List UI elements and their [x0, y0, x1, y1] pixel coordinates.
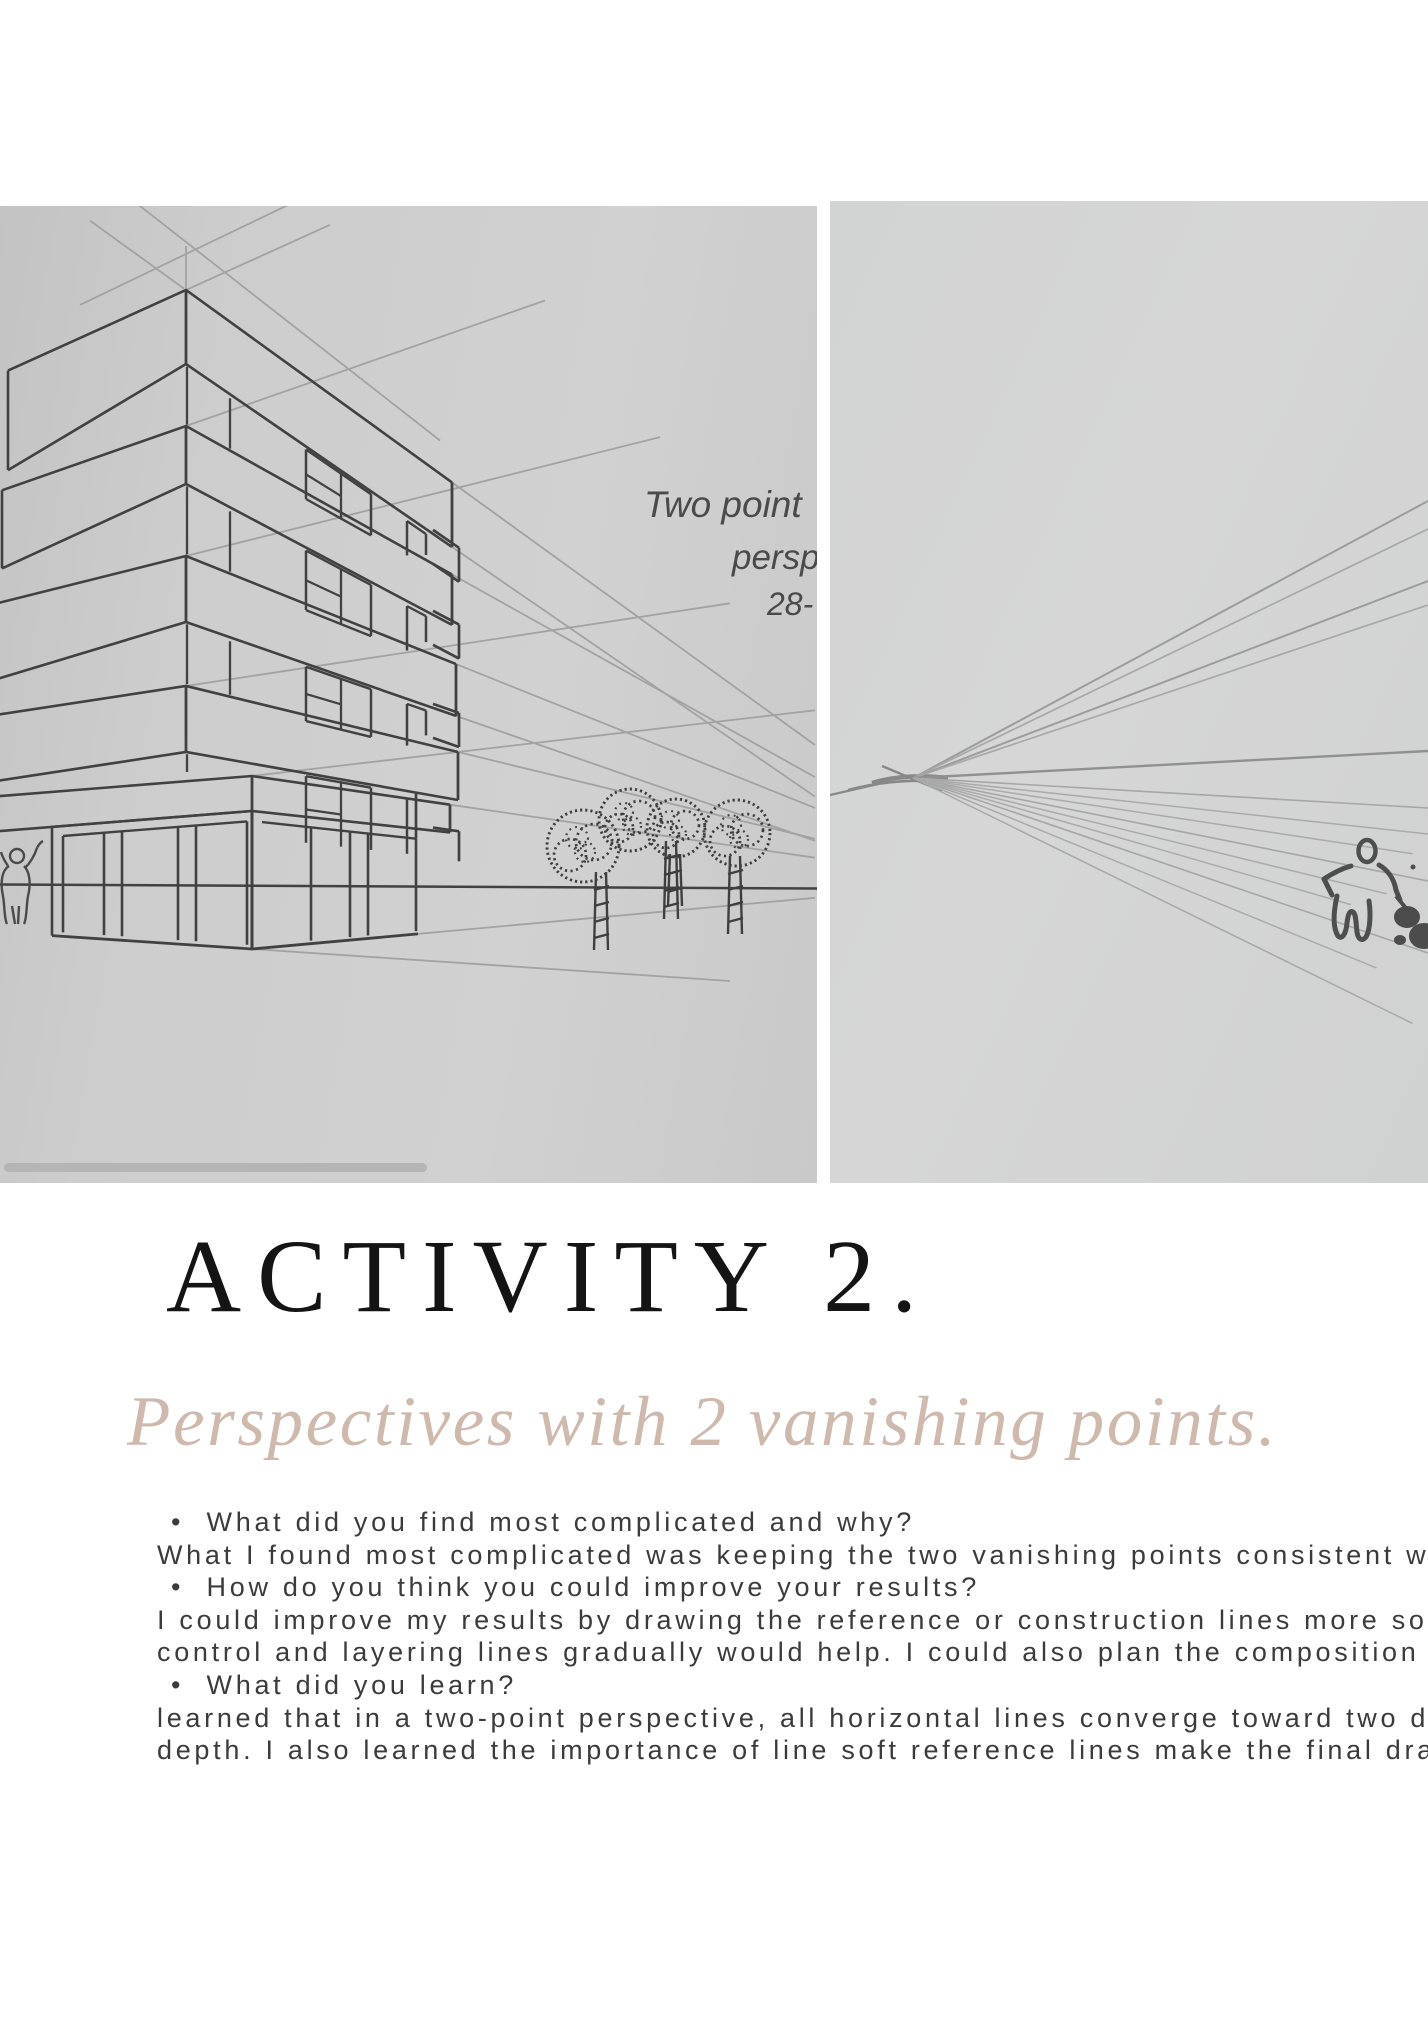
- svg-text:perspec: perspec: [731, 538, 817, 577]
- svg-text:28-: 28-: [766, 586, 813, 622]
- svg-text:Two point: Two point: [644, 484, 803, 525]
